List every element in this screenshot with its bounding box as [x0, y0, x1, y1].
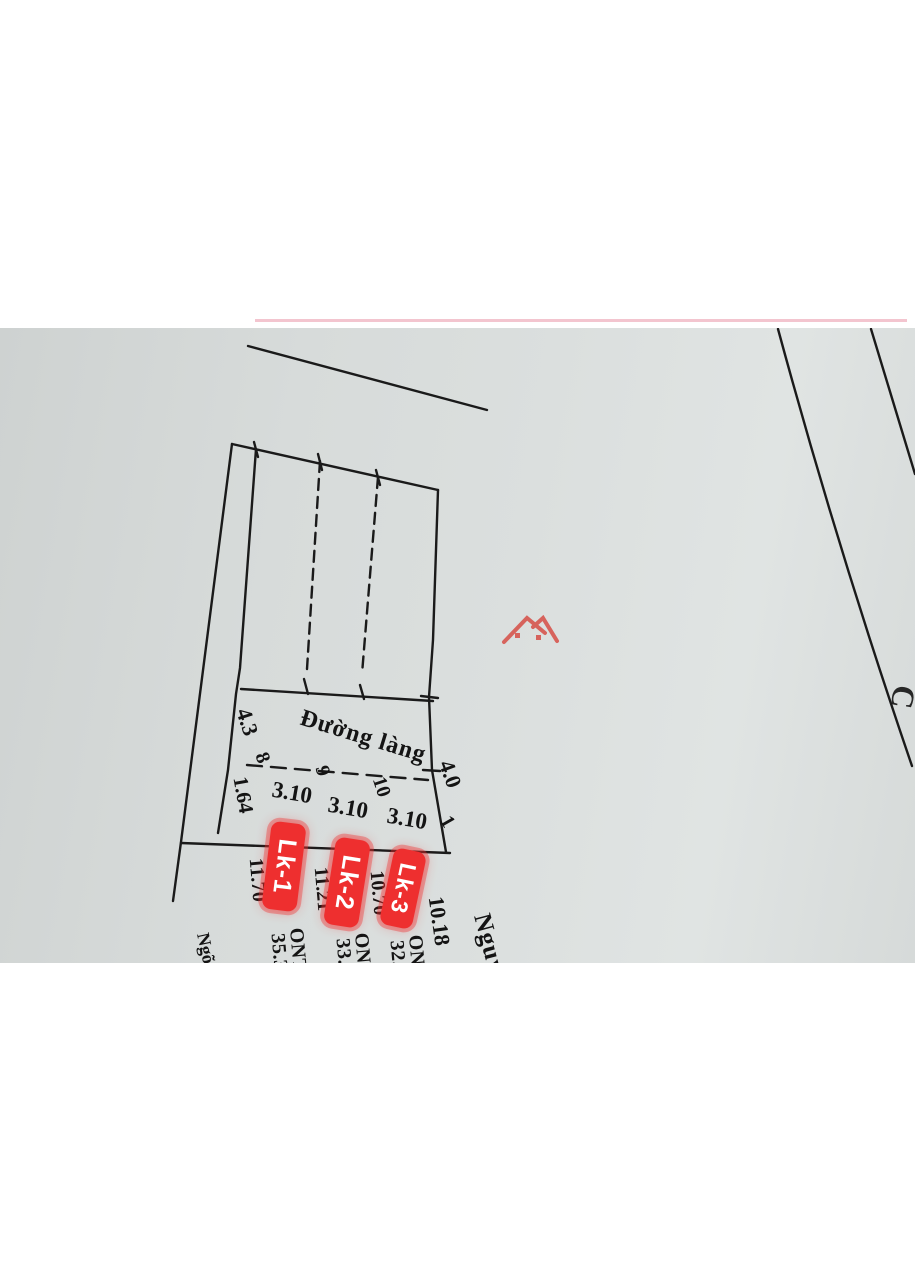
scanned-map-area: Đường làng Nguyễn Công Đức Ngõ đi chung … [0, 328, 915, 963]
area-lk2: ONT 33.7 [332, 932, 374, 963]
divider-lk1-lk2 [307, 461, 320, 669]
area-lk1-value: 35.3 [267, 929, 290, 963]
house-roof-logo [504, 618, 557, 642]
plot-tag-lk2-label: Lk-2 [328, 853, 365, 912]
parcel-right-edge [429, 490, 446, 852]
map-linework [0, 328, 915, 963]
area-lk3: ONT 32.2 [386, 934, 428, 963]
plot-tag-lk1-label: Lk-1 [266, 837, 302, 896]
parcel-top-edge [232, 444, 438, 490]
area-lk1: ONT 35.3 [267, 927, 309, 963]
outer-left-boundary [173, 444, 232, 901]
area-lk3-value: 32.2 [386, 936, 409, 963]
divider-lk2-lk3 [362, 477, 378, 674]
road-top-edge [248, 346, 487, 410]
cadastral-map-photo: Đường làng Nguyễn Công Đức Ngõ đi chung … [0, 0, 915, 1276]
road-right-edge-east [871, 329, 915, 474]
mid-boundary-line [241, 689, 433, 701]
area-lk2-value: 33.7 [332, 934, 355, 963]
scan-artifact-pink-line [255, 319, 907, 322]
